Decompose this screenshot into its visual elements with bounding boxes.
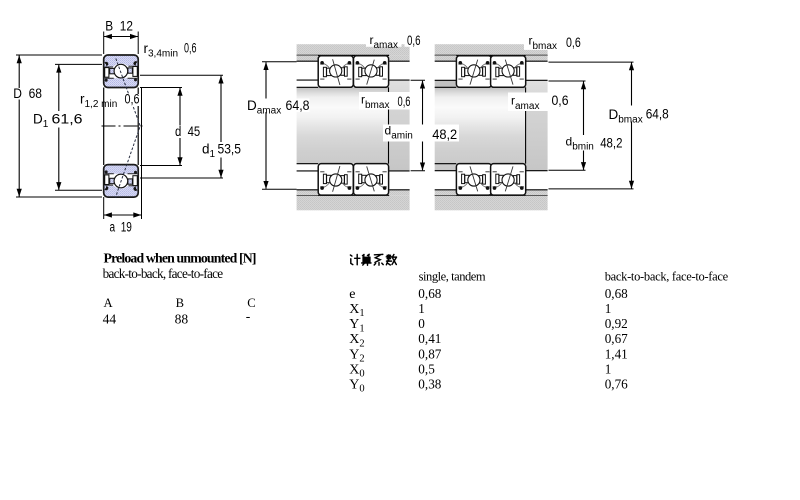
svg-text:e: e: [349, 287, 355, 302]
svg-text:0,6: 0,6: [566, 35, 581, 50]
svg-text:A: A: [104, 296, 113, 310]
svg-text:0,6: 0,6: [398, 94, 411, 109]
svg-text:0,68: 0,68: [605, 286, 628, 301]
svg-text:0: 0: [418, 316, 425, 331]
svg-text:64,8: 64,8: [646, 107, 669, 122]
svg-text:0,38: 0,38: [418, 377, 441, 392]
svg-text:0,68: 0,68: [418, 286, 441, 301]
svg-text:0,67: 0,67: [605, 331, 628, 346]
svg-text:B 12: B 12: [105, 19, 133, 34]
svg-text:48,2: 48,2: [432, 127, 457, 142]
svg-text:0,6: 0,6: [552, 93, 569, 108]
svg-text:Preload when unmounted [N]: Preload when unmounted [N]: [104, 251, 257, 266]
svg-text:0,92: 0,92: [605, 316, 628, 331]
svg-text:1: 1: [418, 301, 425, 316]
svg-text:53,5: 53,5: [218, 142, 242, 157]
svg-text:64,8: 64,8: [286, 98, 310, 113]
svg-text:d 45: d 45: [175, 124, 200, 139]
svg-text:D 68: D 68: [13, 86, 42, 101]
svg-text:61,6: 61,6: [52, 112, 83, 127]
svg-text:88: 88: [175, 312, 189, 327]
svg-text:48,2: 48,2: [600, 136, 622, 151]
svg-text:1,41: 1,41: [605, 346, 628, 361]
svg-text:0,6: 0,6: [184, 41, 197, 56]
svg-text:0,41: 0,41: [418, 331, 441, 346]
svg-text:1: 1: [605, 301, 612, 316]
svg-text:0,6: 0,6: [407, 33, 421, 48]
svg-text:back-to-back, face-to-face: back-to-back, face-to-face: [103, 266, 224, 281]
svg-text:0,76: 0,76: [605, 377, 628, 392]
svg-text:1: 1: [605, 361, 612, 376]
svg-text:-: -: [246, 309, 251, 324]
svg-text:a 19: a 19: [110, 219, 132, 234]
svg-text:back-to-back, face-to-face: back-to-back, face-to-face: [605, 270, 729, 284]
svg-text:44: 44: [103, 312, 117, 327]
svg-text:0,87: 0,87: [418, 346, 441, 361]
svg-text:0,6: 0,6: [125, 92, 140, 107]
svg-text:B: B: [176, 296, 184, 310]
svg-text:single, tandem: single, tandem: [419, 270, 486, 284]
svg-text:0,5: 0,5: [418, 361, 435, 376]
